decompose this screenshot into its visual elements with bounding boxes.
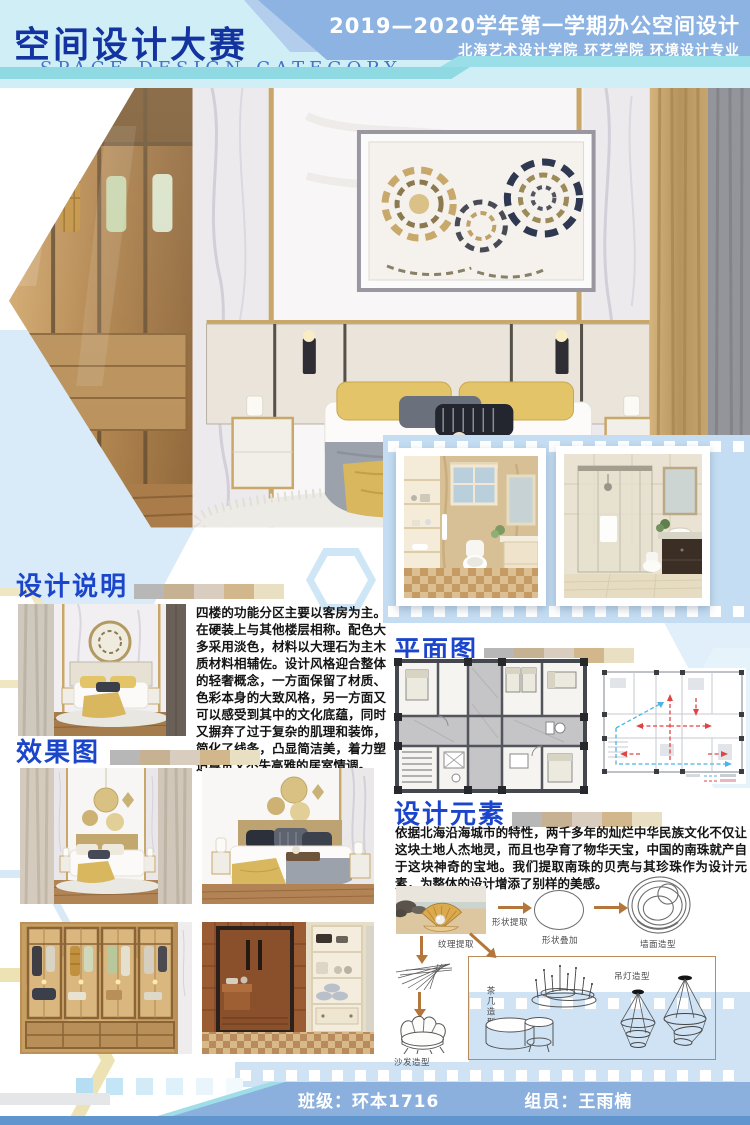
rendering-photo-bedroom-2 [202, 768, 374, 904]
label-shape-extract: 形状提取 [492, 916, 528, 928]
spiky-chandelier-sketch [526, 962, 602, 1010]
color-swatch [254, 584, 284, 599]
header: 空间设计大赛 SPACE DESIGN CATEGORY 2019—2020学年… [0, 0, 750, 88]
design-competition-poster: 空间设计大赛 SPACE DESIGN CATEGORY 2019—2020学年… [0, 0, 750, 1125]
arrow-down-icon [420, 936, 423, 956]
arrow-down-icon [418, 992, 421, 1010]
rendering-photo-wardrobe [20, 922, 192, 1054]
label-lamp-shape: 吊灯造型 [614, 970, 650, 982]
texture-rays-sketch [396, 962, 454, 990]
course-title: 2019—2020学年第一学期办公空间设计 [329, 10, 740, 40]
footer-bottom-strip [0, 1116, 750, 1125]
tea-table-sketch [484, 1014, 556, 1054]
rendering-photo-sauna [202, 922, 374, 1054]
label-shape-overlay: 形状叠加 [542, 934, 578, 946]
header-banner: 2019—2020学年第一学期办公空间设计 北海艺术设计学院 环艺学院 环境设计… [258, 0, 750, 60]
description-photo [18, 604, 186, 736]
hexagon-decoration [306, 548, 376, 612]
wall-shape-sketch [626, 874, 692, 936]
pearl-shell-photo [396, 886, 486, 934]
color-palette-row [110, 750, 260, 765]
color-swatch [224, 584, 254, 599]
color-swatch [194, 584, 224, 599]
label-sofa-shape: 沙发造型 [394, 1056, 430, 1068]
arrow-right-icon [498, 906, 524, 909]
pendant-lamp-sketch-1 [618, 988, 658, 1052]
extracted-shape-ellipse [534, 890, 584, 930]
section-title-renderings: 效果图 [16, 732, 100, 769]
color-swatch [110, 750, 140, 765]
label-texture-extract: 纹理提取 [438, 938, 474, 950]
header-stripe-right [440, 56, 750, 67]
pendant-lamp-sketch-2 [662, 974, 708, 1054]
rendering-photo-bedroom-1 [20, 768, 192, 904]
elements-text: 依据北海沿海城市的特性，两千多年的灿烂中华民族文化不仅让这块土地人杰地灵，而且也… [395, 824, 747, 892]
color-swatch [140, 750, 170, 765]
bathroom-photo-2 [556, 446, 710, 606]
circulation-diagram [600, 668, 746, 784]
color-swatch [170, 750, 200, 765]
arrow-right-icon [594, 906, 620, 909]
member-label: 组员：王雨楠 [524, 1087, 632, 1112]
label-wall-shape: 墙面造型 [640, 938, 676, 950]
sofa-sketch [396, 1014, 450, 1054]
section-title-description: 设计说明 [16, 566, 128, 603]
header-stripe-left [0, 67, 470, 79]
description-text: 四楼的功能分区主要以客房为主。在硬装上与其他楼层相称。配色大多采用淡色，材料以大… [196, 604, 386, 774]
color-swatch [230, 750, 260, 765]
class-label: 班级：环本1716 [298, 1087, 439, 1112]
color-palette-row [134, 584, 284, 599]
color-swatch [164, 584, 194, 599]
color-swatch [134, 584, 164, 599]
footer-gray-bar [0, 1093, 110, 1105]
color-swatch [604, 648, 634, 663]
color-swatch [200, 750, 230, 765]
floor-plan-image [394, 658, 588, 794]
bathroom-photo-1 [396, 448, 546, 606]
